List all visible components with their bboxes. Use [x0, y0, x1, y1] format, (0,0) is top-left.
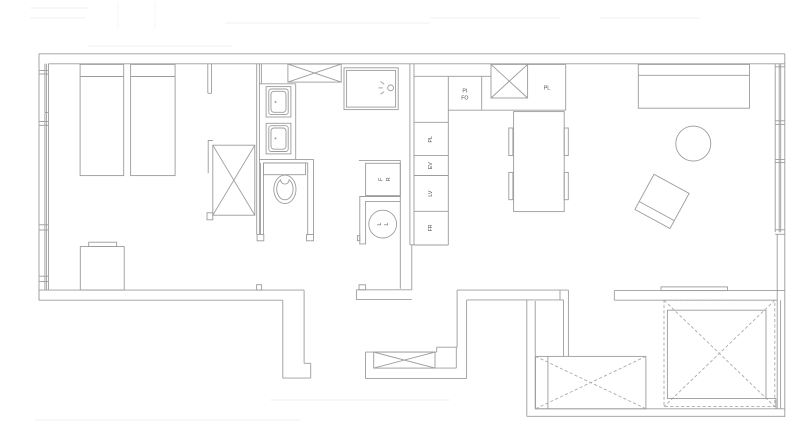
svg-text:R: R	[386, 177, 392, 181]
svg-text:PI: PI	[462, 88, 467, 94]
svg-text:EV: EV	[428, 162, 434, 169]
svg-text:FO: FO	[461, 96, 468, 102]
svg-text:PL: PL	[428, 136, 434, 142]
svg-text:L: L	[384, 223, 390, 226]
svg-text:PL: PL	[544, 86, 550, 92]
svg-text:L: L	[377, 223, 383, 226]
svg-text:FR: FR	[428, 224, 434, 231]
svg-text:LV: LV	[428, 190, 434, 196]
svg-text:F: F	[379, 178, 385, 181]
